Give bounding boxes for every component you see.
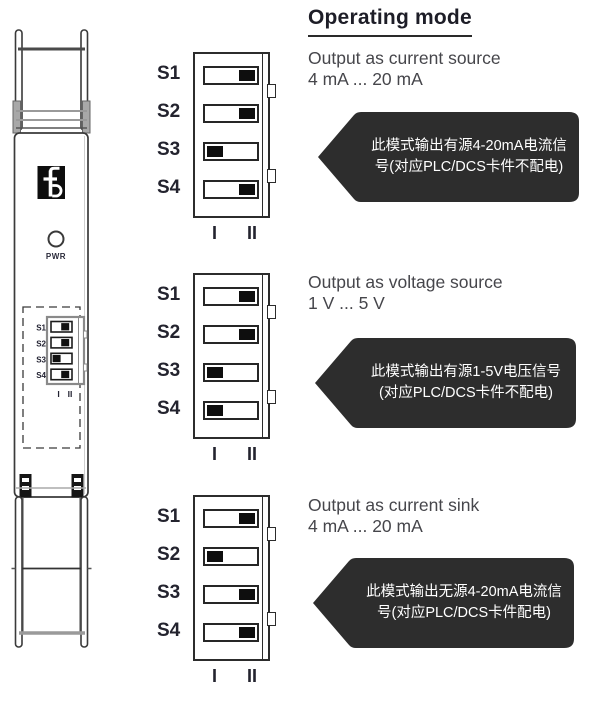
manual-page: PWR S1 S2 S3 S4 bbox=[0, 0, 615, 707]
dip-switch-block bbox=[193, 52, 270, 218]
mini-dip-label: S4 bbox=[36, 371, 46, 380]
position-scale: I II bbox=[193, 661, 270, 687]
dip-labels: S1 S2 S3 S4 bbox=[157, 52, 193, 218]
dip-label-s3: S3 bbox=[157, 361, 193, 380]
mode-1-annotation-text: 此模式输出有源4-20mA电流信号(对应PLC/DCS卡件不配电) bbox=[365, 114, 573, 200]
dip-switch-block bbox=[193, 495, 270, 661]
position-label-ii: II bbox=[247, 666, 257, 687]
dip-switch-s1 bbox=[203, 287, 259, 306]
dip-diagram-mode-3: S1 S2 S3 S4 I II bbox=[157, 495, 307, 687]
dip-switch-s2 bbox=[203, 325, 259, 344]
dip-switch-s1 bbox=[203, 509, 259, 528]
dip-labels: S1 S2 S3 S4 bbox=[157, 273, 193, 439]
mode-2-range: 1 V ... 5 V bbox=[308, 293, 598, 314]
mini-dip-row-s4: S4 bbox=[36, 369, 72, 380]
module-front-view: PWR S1 S2 S3 S4 bbox=[0, 0, 102, 707]
switch-handle bbox=[239, 70, 255, 81]
block-tab bbox=[267, 169, 276, 183]
dip-label-s4: S4 bbox=[157, 621, 193, 640]
mode-1-title: Output as current source bbox=[308, 48, 598, 69]
mode-3-annotation-text: 此模式输出无源4-20mA电流信号(对应PLC/DCS卡件配电) bbox=[360, 560, 568, 646]
dip-switch-s3 bbox=[203, 142, 259, 161]
dip-label-s1: S1 bbox=[157, 285, 193, 304]
page-title: Operating mode bbox=[308, 6, 472, 37]
dip-switch-s4 bbox=[203, 623, 259, 642]
position-scale: I II bbox=[193, 218, 270, 244]
position-scale: I II bbox=[193, 439, 270, 465]
switch-handle bbox=[207, 551, 223, 562]
dip-switch-s4 bbox=[203, 180, 259, 199]
switch-handle bbox=[239, 329, 255, 340]
dip-label-s1: S1 bbox=[157, 64, 193, 83]
block-tab bbox=[267, 612, 276, 626]
switch-handle bbox=[207, 367, 223, 378]
block-tab bbox=[267, 390, 276, 404]
mini-dip-row-s3: S3 bbox=[36, 353, 72, 364]
dip-switch-s3 bbox=[203, 585, 259, 604]
mode-2-annotation-callout: 此模式输出有源1-5V电压信号(对应PLC/DCS卡件不配电) bbox=[315, 338, 578, 428]
mode-2-annotation-text: 此模式输出有源1-5V电压信号(对应PLC/DCS卡件不配电) bbox=[362, 340, 570, 426]
mini-dip-pos-ii: II bbox=[68, 389, 73, 399]
block-tab bbox=[267, 527, 276, 541]
switch-handle bbox=[207, 146, 223, 157]
mini-dip-label: S2 bbox=[36, 339, 46, 348]
block-tab bbox=[267, 305, 276, 319]
switch-handle bbox=[239, 513, 255, 524]
mode-3-description: Output as current sink 4 mA ... 20 mA bbox=[308, 495, 598, 537]
pwr-led bbox=[49, 232, 64, 247]
terminal-clip-left bbox=[20, 474, 32, 498]
dip-label-s3: S3 bbox=[157, 583, 193, 602]
position-label-i: I bbox=[212, 223, 217, 244]
mode-1-description: Output as current source 4 mA ... 20 mA bbox=[308, 48, 598, 90]
dip-label-s1: S1 bbox=[157, 507, 193, 526]
switch-handle bbox=[207, 405, 223, 416]
position-label-ii: II bbox=[247, 444, 257, 465]
dip-label-s2: S2 bbox=[157, 102, 193, 121]
dip-label-s4: S4 bbox=[157, 399, 193, 418]
foot-rail-left bbox=[16, 497, 23, 647]
block-tab bbox=[267, 84, 276, 98]
block-side-strip bbox=[262, 54, 263, 216]
block-side-strip bbox=[262, 275, 263, 437]
dip-switch-s3 bbox=[203, 363, 259, 382]
mode-3-annotation-callout: 此模式输出无源4-20mA电流信号(对应PLC/DCS卡件配电) bbox=[313, 558, 576, 648]
mode-2-description: Output as voltage source 1 V ... 5 V bbox=[308, 272, 598, 314]
mini-dip-label: S1 bbox=[36, 324, 46, 333]
dip-label-s4: S4 bbox=[157, 178, 193, 197]
dip-label-s3: S3 bbox=[157, 140, 193, 159]
switch-handle bbox=[239, 291, 255, 302]
dip-switch-s1 bbox=[203, 66, 259, 85]
mode-1-annotation-callout: 此模式输出有源4-20mA电流信号(对应PLC/DCS卡件不配电) bbox=[318, 112, 581, 202]
block-side-strip bbox=[262, 497, 263, 659]
pwr-label: PWR bbox=[46, 252, 66, 261]
mini-dip-row-s1: S1 bbox=[36, 322, 72, 333]
switch-handle bbox=[239, 589, 255, 600]
position-label-i: I bbox=[212, 444, 217, 465]
switch-handle bbox=[239, 627, 255, 638]
switch-handle bbox=[239, 184, 255, 195]
dip-diagram-mode-1: S1 S2 S3 S4 I II bbox=[157, 52, 307, 244]
terminal-clip-right bbox=[72, 474, 84, 498]
position-label-ii: II bbox=[247, 223, 257, 244]
dip-switch-block bbox=[193, 273, 270, 439]
mode-3-title: Output as current sink bbox=[308, 495, 598, 516]
mini-dip-row-s2: S2 bbox=[36, 337, 72, 348]
dip-switch-s2 bbox=[203, 104, 259, 123]
dip-switch-s2 bbox=[203, 547, 259, 566]
position-label-i: I bbox=[212, 666, 217, 687]
dip-diagram-mode-2: S1 S2 S3 S4 I II bbox=[157, 273, 307, 465]
pepperl-fuchs-logo-icon bbox=[38, 166, 66, 199]
dip-labels: S1 S2 S3 S4 bbox=[157, 495, 193, 661]
foot-rail-right bbox=[81, 497, 88, 647]
switch-handle bbox=[239, 108, 255, 119]
mode-1-range: 4 mA ... 20 mA bbox=[308, 69, 598, 90]
mini-dip-label: S3 bbox=[36, 355, 46, 364]
mode-3-range: 4 mA ... 20 mA bbox=[308, 516, 598, 537]
mini-dip-pos-i: I bbox=[57, 389, 59, 399]
dip-switch-s4 bbox=[203, 401, 259, 420]
mode-2-title: Output as voltage source bbox=[308, 272, 598, 293]
dip-label-s2: S2 bbox=[157, 545, 193, 564]
dip-label-s2: S2 bbox=[157, 323, 193, 342]
